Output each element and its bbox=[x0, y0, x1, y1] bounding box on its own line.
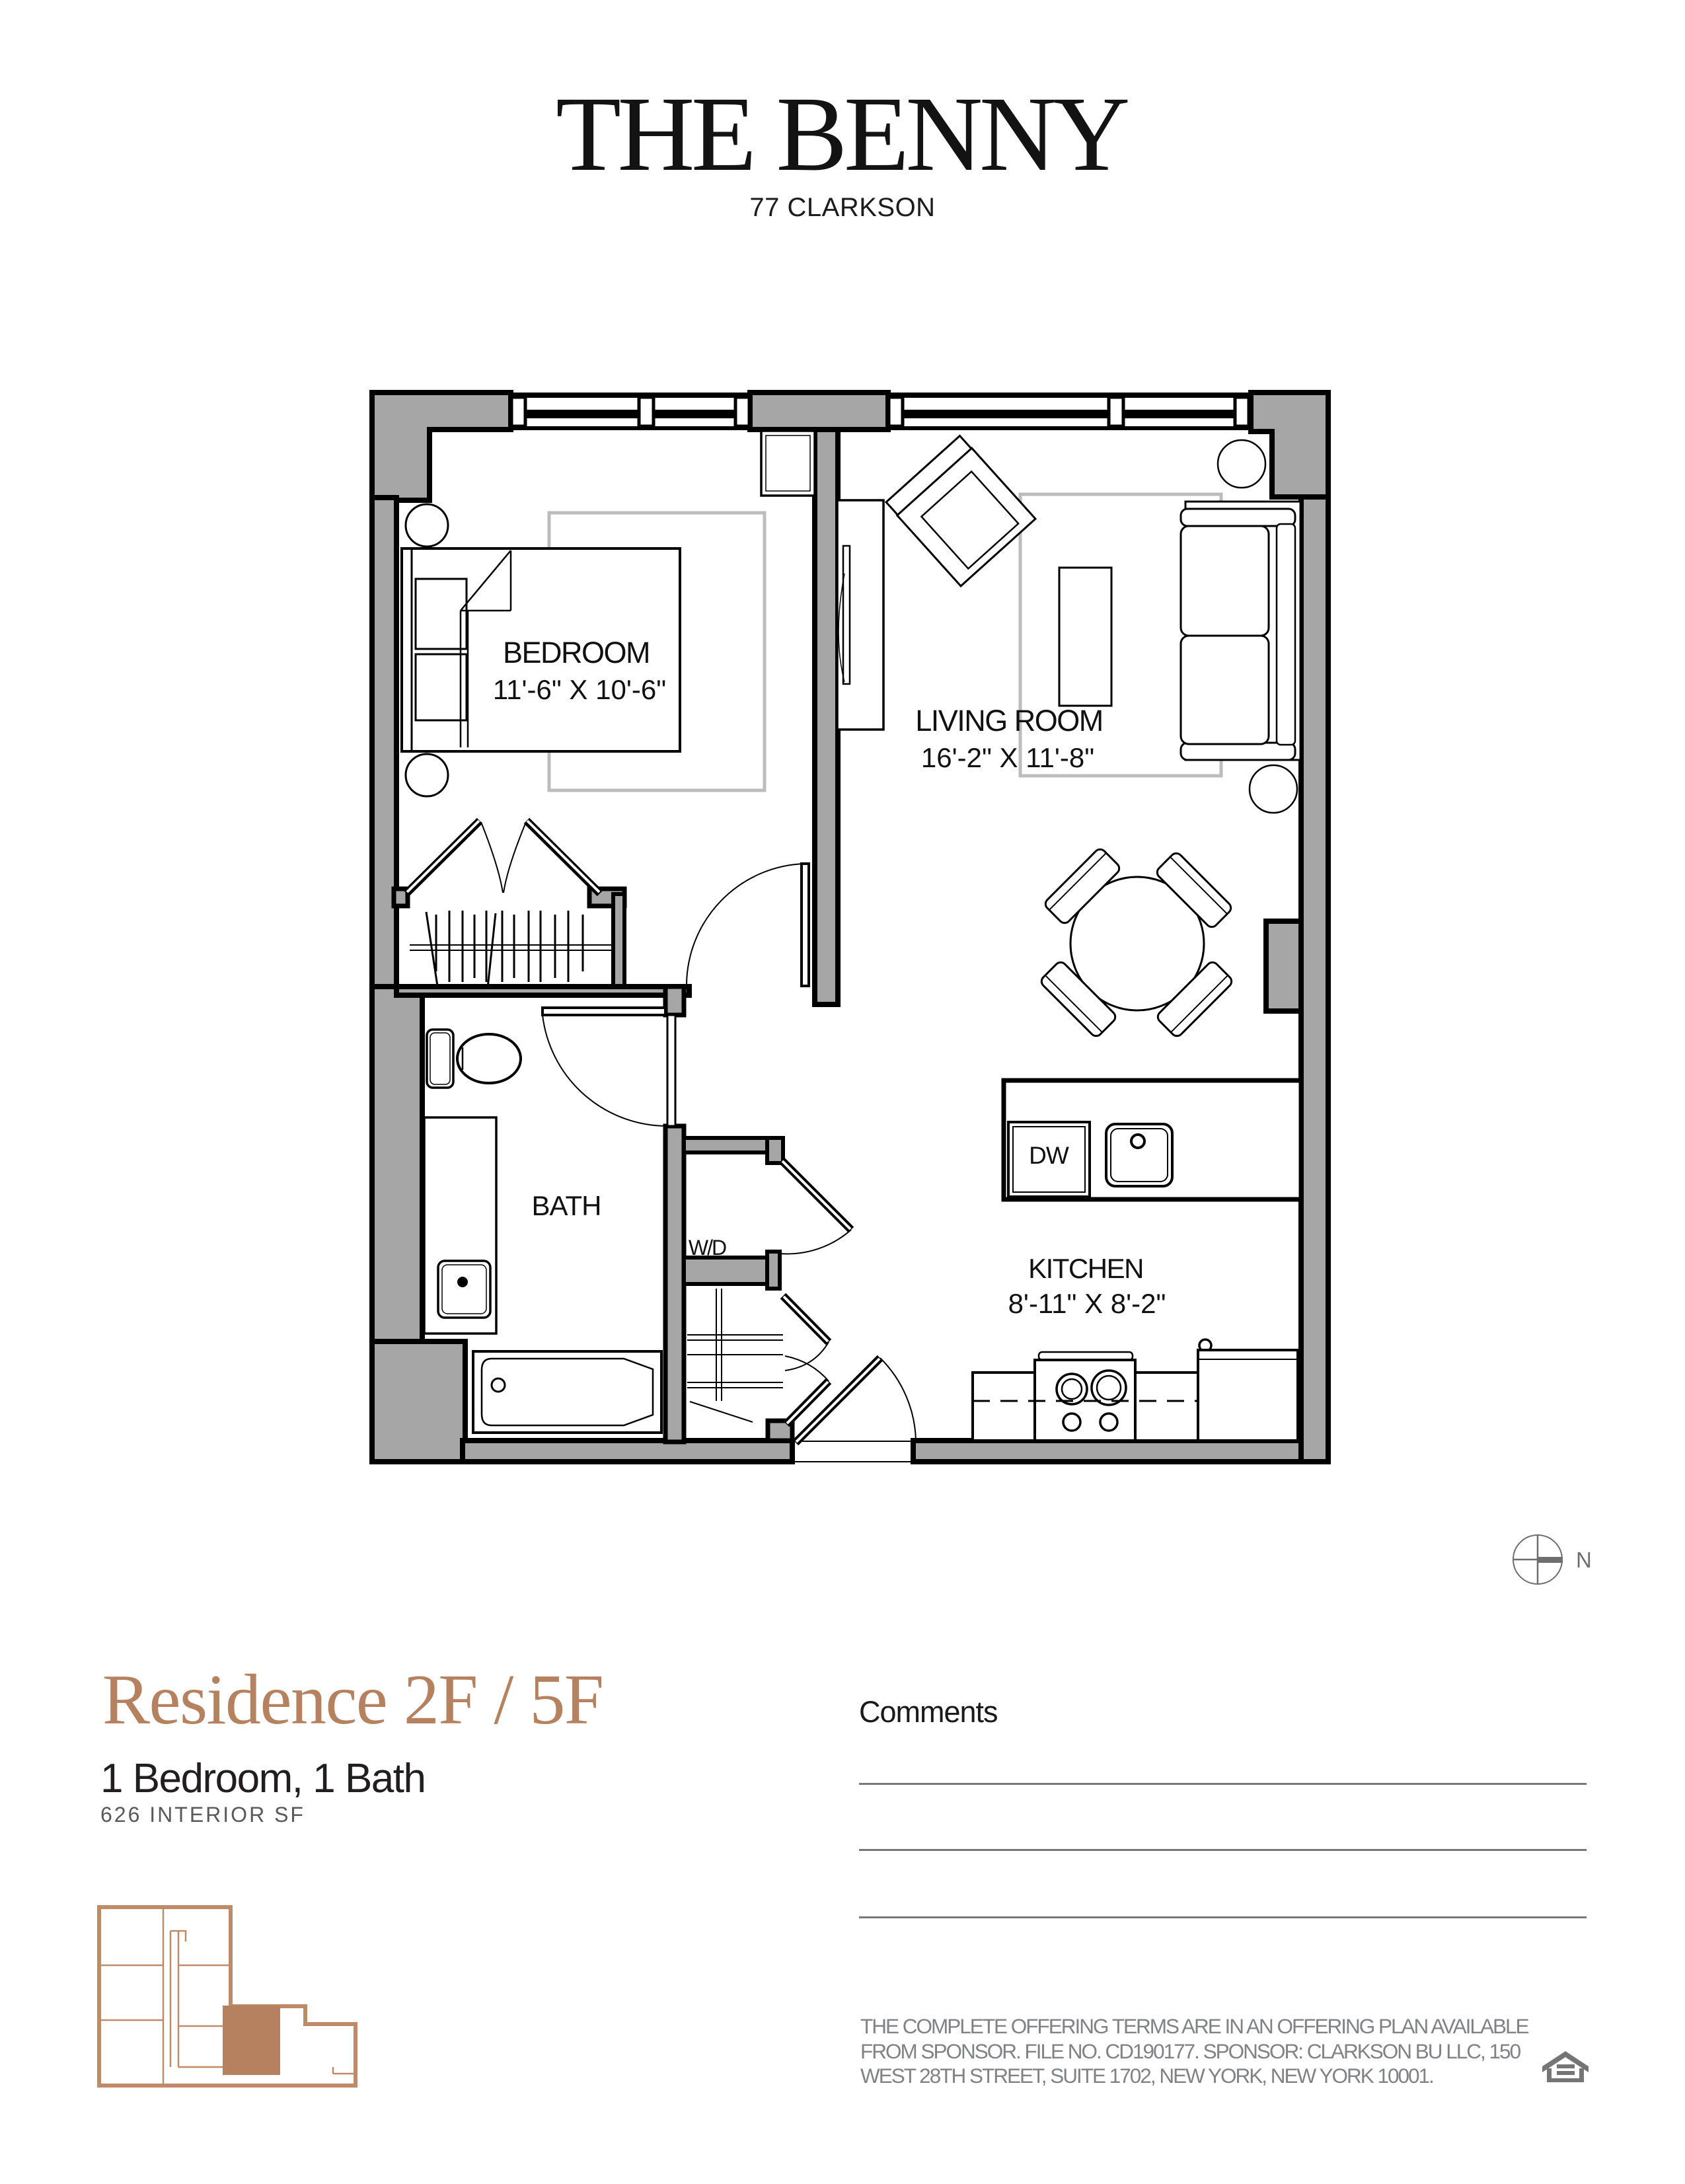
svg-text:77 CLARKSON: 77 CLARKSON bbox=[749, 193, 935, 222]
svg-text:KITCHEN: KITCHEN bbox=[1028, 1253, 1143, 1284]
svg-text:Comments: Comments bbox=[859, 1695, 998, 1729]
svg-text:626 INTERIOR SF: 626 INTERIOR SF bbox=[100, 1803, 305, 1826]
svg-text:LIVING ROOM: LIVING ROOM bbox=[915, 704, 1103, 737]
svg-text:THE BENNY: THE BENNY bbox=[556, 75, 1127, 194]
svg-text:THE COMPLETE OFFERING TERMS AR: THE COMPLETE OFFERING TERMS ARE IN AN OF… bbox=[860, 2014, 1528, 2038]
svg-text:N: N bbox=[1576, 1548, 1592, 1572]
svg-text:16'-2" X 11'-8": 16'-2" X 11'-8" bbox=[921, 742, 1094, 773]
svg-text:WEST 28TH STREET, SUITE 1702,: WEST 28TH STREET, SUITE 1702, NEW YORK, … bbox=[860, 2064, 1433, 2088]
svg-text:8'-11" X 8'-2": 8'-11" X 8'-2" bbox=[1008, 1288, 1166, 1319]
svg-text:11'-6" X 10'-6": 11'-6" X 10'-6" bbox=[493, 674, 666, 705]
svg-text:DW: DW bbox=[1029, 1142, 1069, 1169]
svg-text:1 Bedroom, 1 Bath: 1 Bedroom, 1 Bath bbox=[100, 1756, 425, 1801]
svg-text:BEDROOM: BEDROOM bbox=[503, 636, 650, 669]
svg-text:Residence 2F / 5F: Residence 2F / 5F bbox=[102, 1661, 603, 1739]
svg-text:FROM SPONSOR. FILE NO. CD19017: FROM SPONSOR. FILE NO. CD190177. SPONSOR… bbox=[860, 2039, 1521, 2063]
svg-text:BATH: BATH bbox=[532, 1190, 601, 1221]
svg-text:W/D: W/D bbox=[689, 1236, 726, 1260]
